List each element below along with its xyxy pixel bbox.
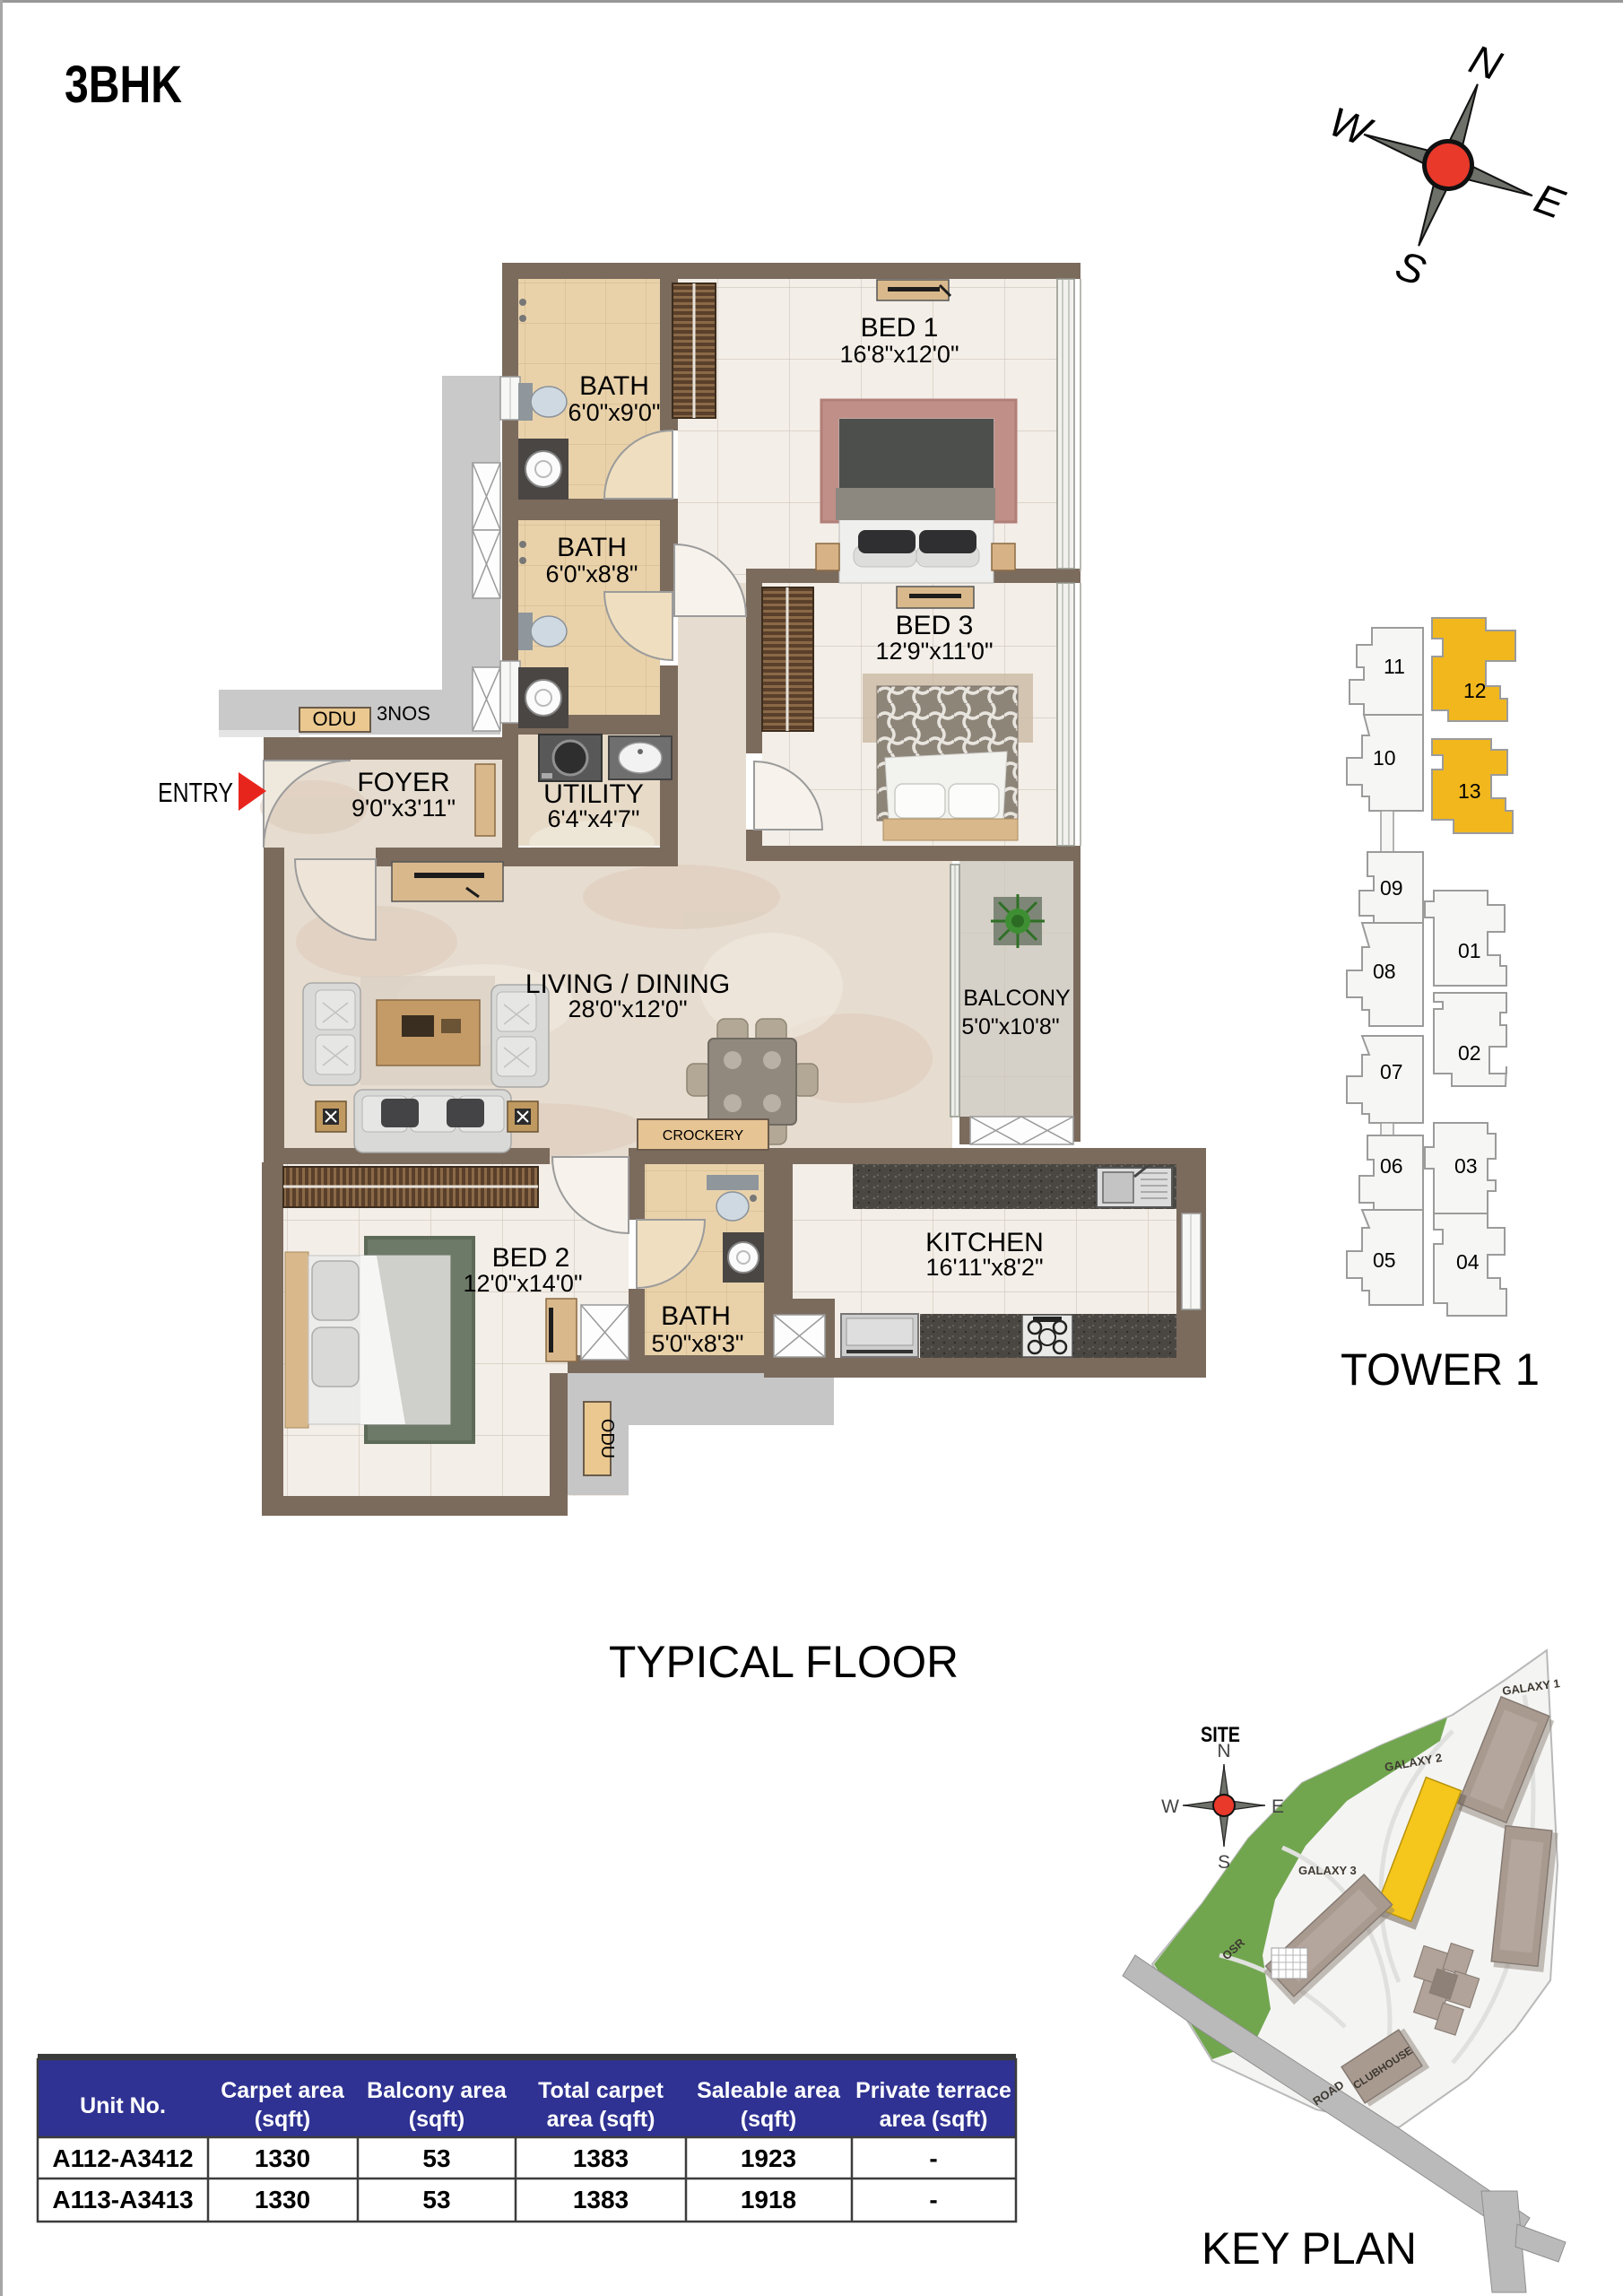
svg-text:16'8"x12'0": 16'8"x12'0" <box>839 341 959 368</box>
svg-text:5'0"x8'3": 5'0"x8'3" <box>651 1330 743 1357</box>
svg-text:Total carpet: Total carpet <box>538 2078 664 2103</box>
svg-text:ODU: ODU <box>313 708 357 730</box>
svg-text:04: 04 <box>1456 1250 1480 1274</box>
svg-text:GALAXY 3: GALAXY 3 <box>1298 1864 1357 1877</box>
svg-text:28'0"x12'0": 28'0"x12'0" <box>568 996 687 1022</box>
svg-text:12'9"x11'0": 12'9"x11'0" <box>875 638 993 665</box>
svg-text:06: 06 <box>1380 1154 1403 1178</box>
svg-text:08: 08 <box>1373 960 1396 983</box>
svg-text:BATH: BATH <box>579 371 649 401</box>
svg-text:10: 10 <box>1373 746 1396 770</box>
svg-text:1383: 1383 <box>573 2144 629 2172</box>
svg-text:13: 13 <box>1458 779 1481 803</box>
svg-text:S: S <box>1218 1852 1230 1873</box>
svg-text:9'0"x3'11": 9'0"x3'11" <box>352 795 456 822</box>
svg-text:53: 53 <box>422 2144 450 2172</box>
svg-text:A112-A3412: A112-A3412 <box>52 2144 193 2172</box>
svg-text:area (sqft): area (sqft) <box>880 2107 988 2132</box>
svg-text:(sqft): (sqft) <box>255 2107 310 2132</box>
svg-text:05: 05 <box>1373 1248 1396 1272</box>
svg-text:3BHK: 3BHK <box>65 56 182 114</box>
svg-text:Private terrace: Private terrace <box>855 2078 1011 2103</box>
svg-text:-: - <box>929 2186 937 2213</box>
svg-text:-: - <box>929 2144 937 2172</box>
svg-text:01: 01 <box>1458 939 1481 962</box>
svg-text:CROCKERY: CROCKERY <box>663 1128 744 1144</box>
svg-text:07: 07 <box>1380 1060 1403 1083</box>
svg-text:TOWER 1: TOWER 1 <box>1341 1344 1540 1395</box>
svg-text:6'4"x4'7": 6'4"x4'7" <box>547 805 639 832</box>
svg-text:5'0"x10'8": 5'0"x10'8" <box>961 1014 1059 1039</box>
svg-text:BED 2: BED 2 <box>492 1243 570 1273</box>
svg-text:BED 3: BED 3 <box>896 611 974 640</box>
svg-text:KEY PLAN: KEY PLAN <box>1202 2223 1417 2274</box>
svg-text:Balcony area: Balcony area <box>367 2078 508 2103</box>
svg-text:Saleable area: Saleable area <box>697 2078 841 2103</box>
svg-text:1918: 1918 <box>741 2186 796 2213</box>
svg-text:12'0"x14'0": 12'0"x14'0" <box>463 1270 582 1297</box>
svg-text:TYPICAL FLOOR: TYPICAL FLOOR <box>609 1637 959 1687</box>
svg-text:FOYER: FOYER <box>357 768 449 797</box>
svg-text:N: N <box>1217 1741 1230 1761</box>
svg-text:BATH: BATH <box>557 533 627 562</box>
svg-text:1330: 1330 <box>255 2186 310 2213</box>
svg-text:09: 09 <box>1380 876 1403 900</box>
svg-text:6'0"x9'0": 6'0"x9'0" <box>568 399 660 426</box>
svg-text:(sqft): (sqft) <box>741 2107 796 2132</box>
svg-text:3NOS: 3NOS <box>377 702 430 725</box>
svg-text:02: 02 <box>1458 1041 1481 1065</box>
svg-text:11: 11 <box>1384 655 1405 678</box>
svg-text:ENTRY: ENTRY <box>158 777 233 808</box>
svg-text:1923: 1923 <box>741 2144 796 2172</box>
svg-text:1383: 1383 <box>573 2186 629 2213</box>
svg-text:E: E <box>1271 1796 1284 1817</box>
svg-text:BALCONY: BALCONY <box>963 986 1071 1011</box>
svg-text:area (sqft): area (sqft) <box>547 2107 655 2132</box>
svg-text:6'0"x8'8": 6'0"x8'8" <box>545 561 638 587</box>
svg-text:16'11"x8'2": 16'11"x8'2" <box>925 1254 1043 1281</box>
svg-text:Unit No.: Unit No. <box>80 2093 166 2118</box>
svg-text:1330: 1330 <box>255 2144 310 2172</box>
svg-text:Carpet area: Carpet area <box>221 2078 345 2103</box>
svg-text:A113-A3413: A113-A3413 <box>52 2186 193 2213</box>
svg-text:03: 03 <box>1454 1154 1478 1178</box>
svg-text:W: W <box>1161 1796 1179 1817</box>
svg-text:(sqft): (sqft) <box>409 2107 464 2132</box>
svg-text:12: 12 <box>1463 679 1487 702</box>
svg-text:BED 1: BED 1 <box>861 313 939 343</box>
svg-text:53: 53 <box>422 2186 450 2213</box>
svg-text:ODU: ODU <box>597 1419 617 1458</box>
svg-text:BATH: BATH <box>661 1301 731 1331</box>
